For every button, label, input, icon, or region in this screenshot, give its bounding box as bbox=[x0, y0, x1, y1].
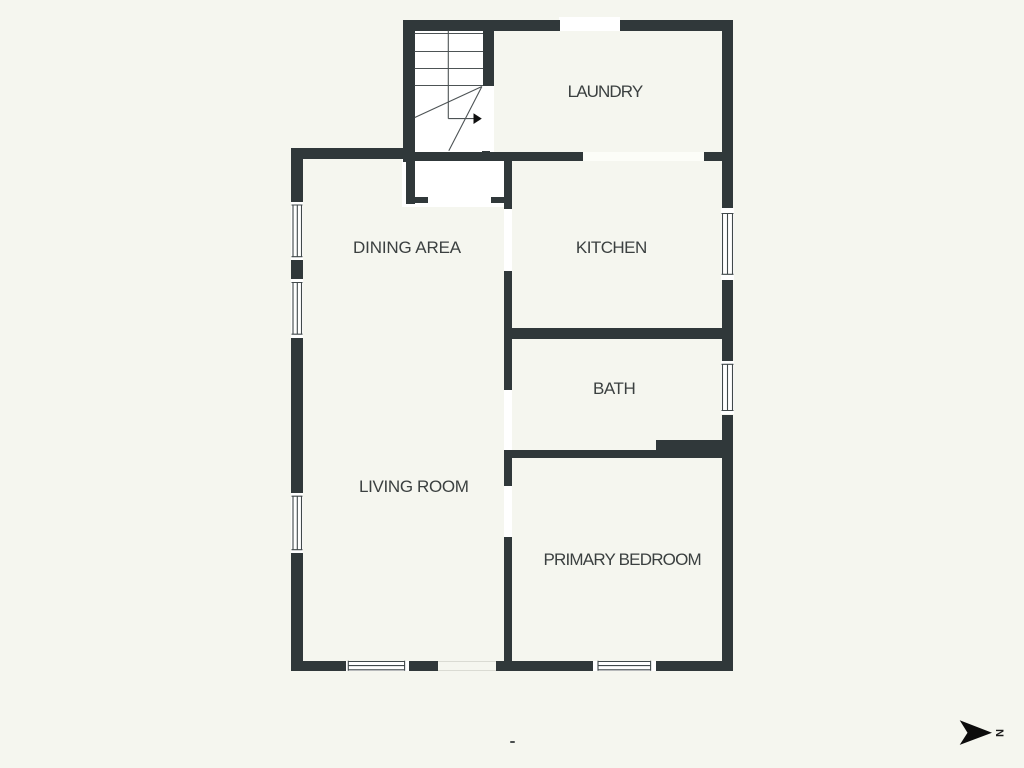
svg-text:N: N bbox=[993, 729, 1005, 737]
